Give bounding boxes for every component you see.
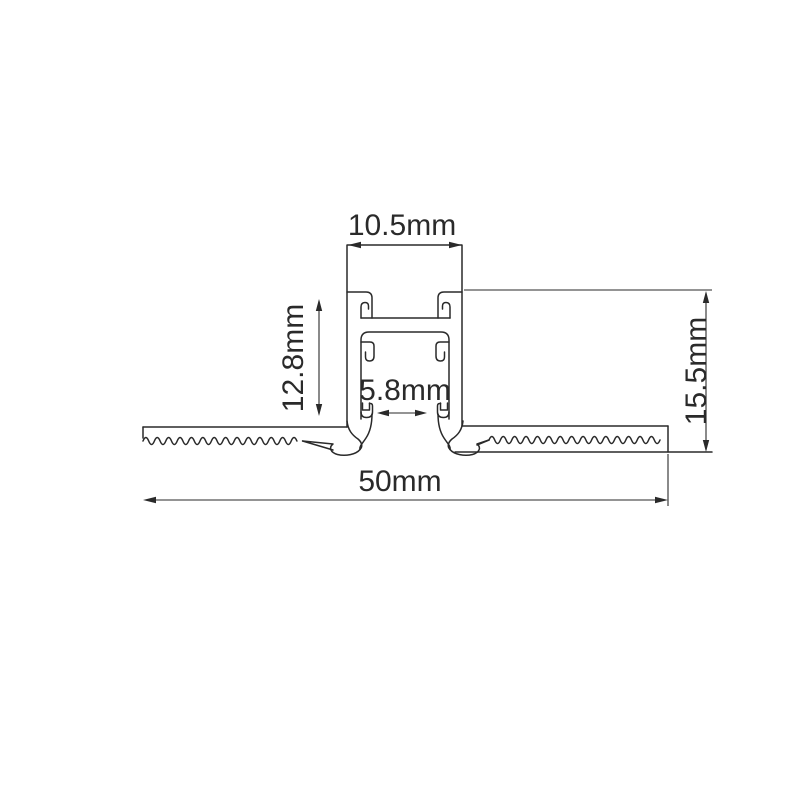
clip-leg-upper-left	[361, 303, 369, 319]
dim-recess-height: 15.5mm	[464, 290, 713, 452]
arrowhead	[316, 404, 322, 416]
dimension-label-recess-height: 15.5mm	[680, 317, 713, 425]
profile-outline	[143, 245, 712, 455]
flange-texture-wave-right	[489, 437, 660, 444]
dimension-label-body-height: 12.8mm	[277, 304, 310, 412]
flange-texture-wave-left	[143, 438, 297, 445]
arrowhead	[143, 497, 156, 503]
dim-top-width: 10.5mm	[348, 209, 462, 248]
track-hook-upper-right	[436, 342, 449, 361]
arrowhead	[316, 299, 322, 311]
arrowhead	[703, 440, 709, 452]
arrowhead	[655, 497, 668, 503]
arrowhead	[703, 291, 709, 303]
profile-cross-section-diagram: 10.5mm 12.8mm 5.8mm 15.5mm	[0, 0, 800, 800]
arrowhead	[449, 242, 462, 248]
arrowhead	[415, 410, 427, 416]
dimension-annotations: 10.5mm 12.8mm 5.8mm 15.5mm	[143, 209, 713, 506]
drawing-canvas: 10.5mm 12.8mm 5.8mm 15.5mm	[0, 0, 800, 800]
dimension-label-overall-width: 50mm	[358, 465, 441, 498]
arrowhead	[348, 242, 361, 248]
clip-leg-upper-right	[443, 303, 451, 319]
dim-overall-width: 50mm	[143, 454, 668, 506]
arrowhead	[377, 410, 389, 416]
dimension-label-top-width: 10.5mm	[348, 209, 456, 242]
dimension-label-slot-width: 5.8mm	[359, 374, 451, 407]
dim-body-height: 12.8mm	[277, 299, 322, 416]
track-hook-upper-left	[361, 342, 374, 361]
